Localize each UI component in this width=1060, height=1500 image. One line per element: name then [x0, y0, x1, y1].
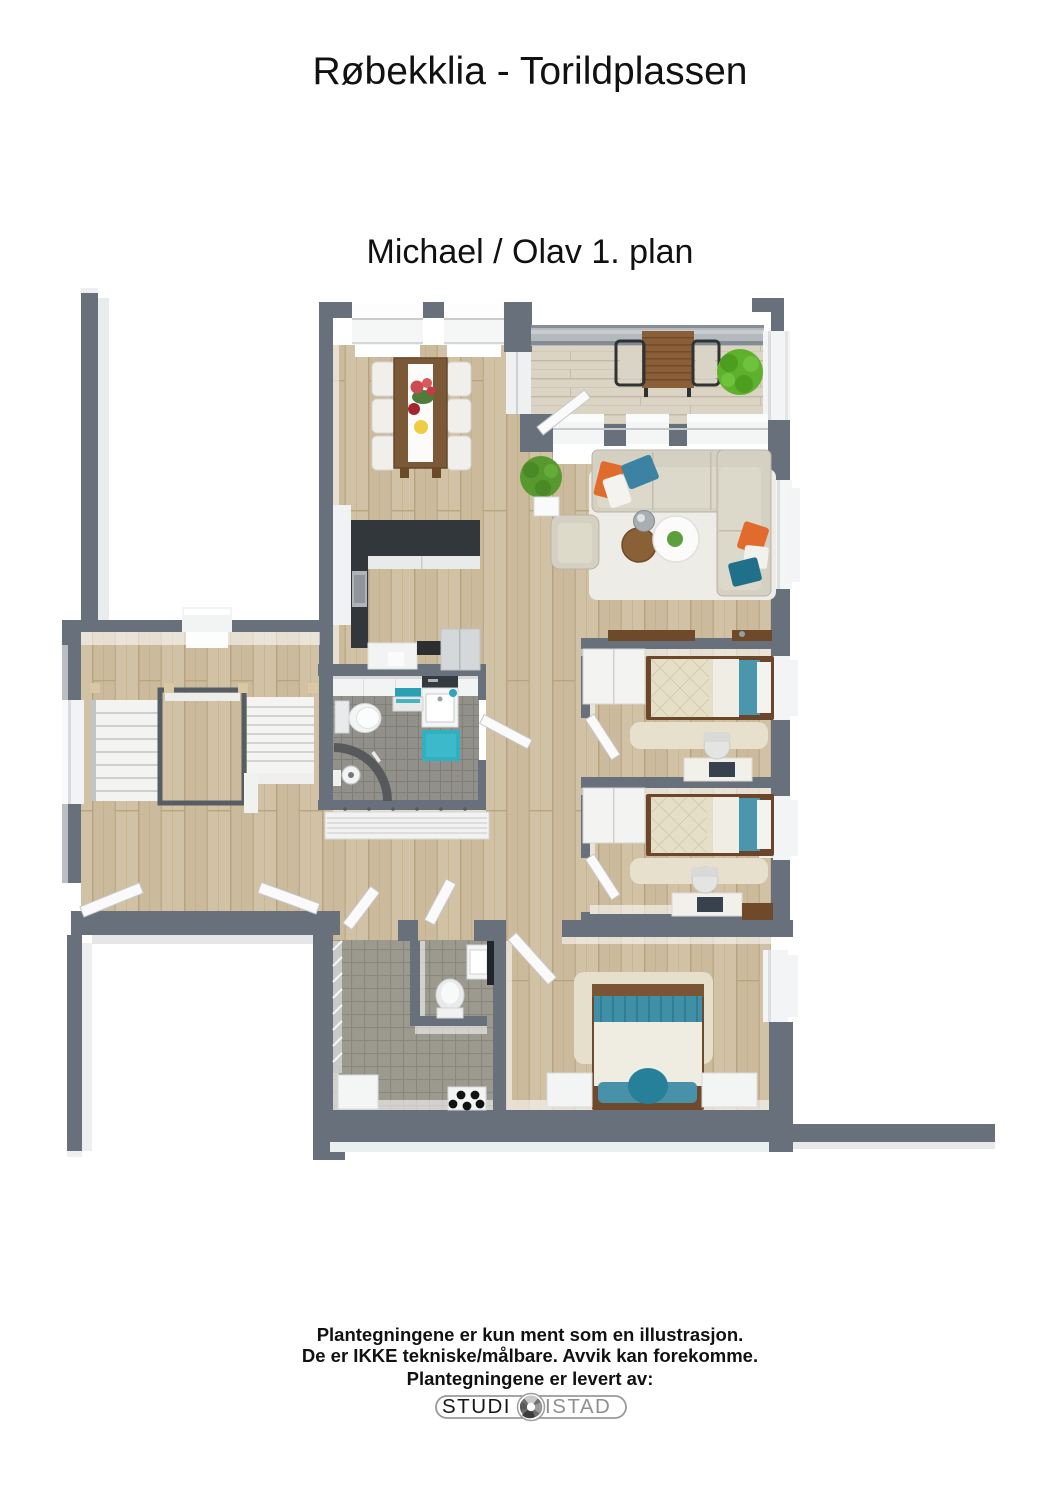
- svg-text:STUDI: STUDI: [442, 1395, 511, 1418]
- svg-text:ISTAD: ISTAD: [545, 1395, 611, 1418]
- svg-text:Røbekklia - Torildplassen: Røbekklia - Torildplassen: [313, 50, 748, 93]
- svg-text:Michael / Olav 1. plan: Michael / Olav 1. plan: [367, 233, 694, 271]
- svg-text:Plantegningene er levert av:: Plantegningene er levert av:: [407, 1368, 654, 1389]
- svg-text:Plantegningene er kun ment som: Plantegningene er kun ment som en illust…: [317, 1324, 744, 1345]
- svg-text:De er IKKE tekniske/målbare. A: De er IKKE tekniske/målbare. Avvik kan f…: [302, 1345, 758, 1366]
